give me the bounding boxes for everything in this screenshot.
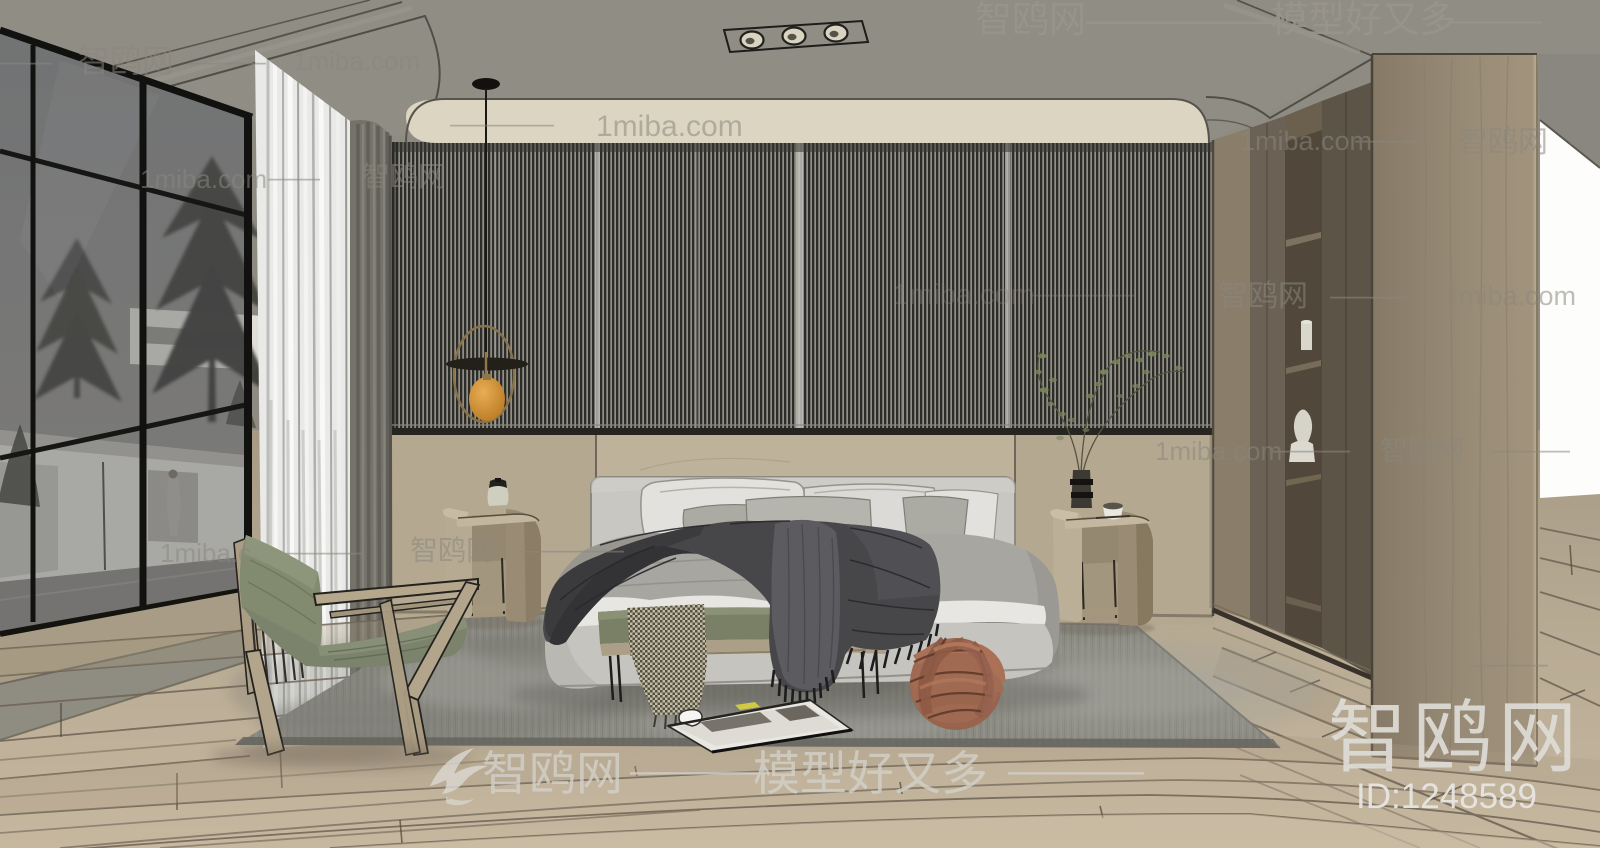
svg-text:――: ―― (0, 46, 52, 76)
svg-text:1miba.com: 1miba.com (1155, 436, 1282, 466)
svg-text:智鸥网: 智鸥网 (1328, 693, 1583, 782)
svg-text:――――: ―――― (630, 752, 766, 790)
svg-text:―――: ――― (1470, 648, 1548, 678)
svg-text:1miba.com: 1miba.com (293, 46, 420, 76)
svg-text:――: ―― (268, 162, 320, 192)
svg-text:1miba.c: 1miba.c (160, 538, 251, 568)
svg-text:――――: ―――― (1008, 752, 1144, 790)
svg-text:模型好又多: 模型好又多 (753, 747, 988, 800)
svg-text:1miba.com: 1miba.com (140, 164, 267, 194)
svg-text:1miba.com: 1miba.com (596, 110, 743, 143)
svg-text:智鸥网: 智鸥网 (410, 535, 494, 566)
svg-text:―: ― (1570, 126, 1596, 156)
svg-text:――――: ―――― (1030, 278, 1134, 308)
svg-text:――――: ―――― (450, 108, 554, 138)
svg-text:ID:1248589: ID:1248589 (1356, 777, 1537, 816)
svg-text:―――: ――― (1330, 280, 1408, 310)
svg-text:智鸥网: 智鸥网 (1458, 126, 1548, 159)
svg-text:1miba.com: 1miba.com (1240, 126, 1372, 156)
svg-text:智鸥网: 智鸥网 (1218, 280, 1308, 313)
svg-text:1miba.com: 1miba.com (893, 279, 1035, 311)
svg-text:―――: ――― (1355, 124, 1433, 154)
svg-text:―――: ――― (1272, 434, 1350, 464)
svg-text:―――: ――― (1452, 4, 1542, 37)
svg-text:智鸥网: 智鸥网 (1380, 435, 1464, 466)
svg-text:1miba.com: 1miba.com (1444, 281, 1576, 311)
svg-text:―――: ――― (1492, 434, 1570, 464)
svg-text:智鸥网: 智鸥网 (78, 43, 174, 79)
svg-text:―――: ――― (285, 536, 363, 566)
svg-text:―――: ――― (188, 46, 266, 76)
svg-text:智鸥网: 智鸥网 (362, 161, 446, 192)
svg-text:智鸥网―――――模型好又多: 智鸥网―――――模型好又多 (975, 0, 1456, 40)
svg-text:――――: ―――― (520, 534, 624, 564)
svg-text:智鸥网: 智鸥网 (482, 747, 623, 800)
